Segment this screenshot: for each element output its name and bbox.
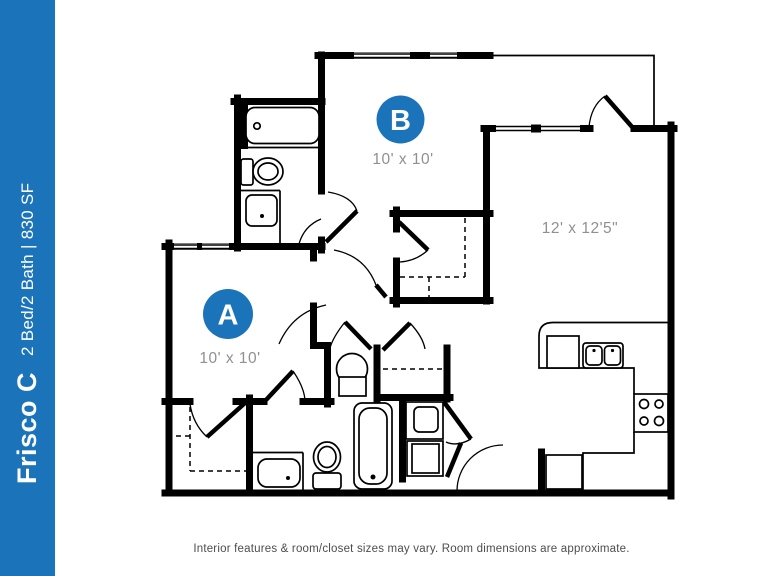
bathroom1-door-arc bbox=[299, 219, 321, 244]
stove-icon bbox=[634, 394, 668, 432]
kitchen bbox=[539, 323, 668, 491]
bathroom-1 bbox=[241, 108, 319, 245]
wh-closet-door bbox=[345, 322, 371, 349]
toilet-1-icon bbox=[241, 158, 283, 185]
sidebar: Frisco C 2 Bed/2 Bath | 830 SF bbox=[0, 0, 55, 576]
sink-2-icon bbox=[253, 453, 303, 492]
bathroom2-door bbox=[266, 371, 293, 400]
washer-dryer-icon bbox=[406, 402, 443, 476]
bedroom-a-door-arc bbox=[279, 305, 326, 344]
bedroom-b-window bbox=[354, 52, 457, 59]
plan-specs: 2 Bed/2 Bath | 830 SF bbox=[18, 183, 38, 356]
entry-porch-outline bbox=[490, 56, 654, 127]
bathroom-2 bbox=[253, 403, 392, 491]
living-dimensions: 12' x 12'5" bbox=[542, 220, 618, 237]
bathtub-2-icon bbox=[354, 403, 392, 489]
floorplan-drawing: B 10' x 10' A 10' x 10' 12' x 12'5" bbox=[0, 0, 768, 576]
marker-a-letter: A bbox=[218, 300, 239, 332]
closet-a-rod bbox=[167, 407, 248, 471]
bathtub-1-icon bbox=[246, 108, 319, 144]
toilet-2-icon bbox=[313, 442, 341, 489]
bedroom-b-dimensions: 10' x 10' bbox=[372, 151, 433, 168]
bedroom-a-dimensions: 10' x 10' bbox=[199, 350, 260, 367]
bedroom-a-window bbox=[174, 243, 229, 250]
closet-a-door bbox=[207, 403, 245, 437]
linen-closet-door bbox=[383, 323, 410, 350]
plan-title: Frisco C bbox=[12, 372, 43, 484]
living-window bbox=[496, 125, 580, 133]
kitchen-sink-icon bbox=[583, 343, 623, 368]
front-door bbox=[605, 96, 633, 128]
bedroom-b-marker: B bbox=[377, 96, 425, 144]
marker-b-letter: B bbox=[390, 105, 411, 137]
disclaimer-text: Interior features & room/closet sizes ma… bbox=[55, 543, 768, 555]
vestibule-door bbox=[447, 443, 461, 477]
bedroom-b-door bbox=[326, 211, 357, 242]
hall-door-arc bbox=[334, 250, 376, 285]
sidebar-rotated-text: Frisco C 2 Bed/2 Bath | 830 SF bbox=[0, 0, 55, 576]
water-heater-icon bbox=[337, 354, 368, 397]
bedroom-a-marker: A bbox=[203, 289, 253, 339]
kitchen-prep-area bbox=[547, 336, 579, 368]
fridge-icon bbox=[546, 455, 582, 489]
sink-1-icon bbox=[241, 191, 280, 245]
closet-b-door bbox=[399, 222, 428, 250]
wd-closet-door bbox=[444, 402, 471, 439]
floorplan-page: B 10' x 10' A 10' x 10' 12' x 12'5" Fris… bbox=[0, 0, 768, 576]
